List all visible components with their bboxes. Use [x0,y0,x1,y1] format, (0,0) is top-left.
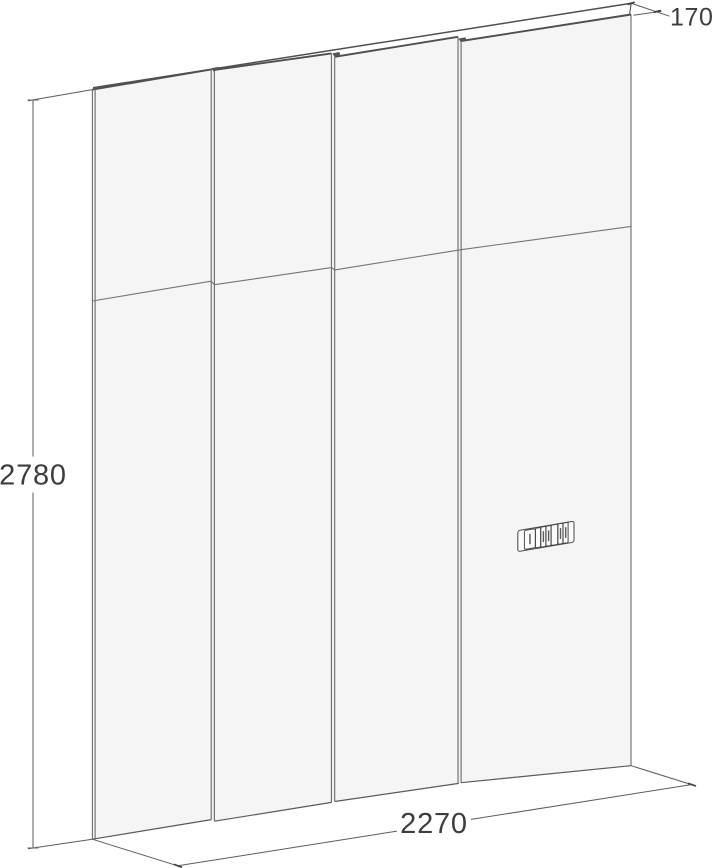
svg-text:2780: 2780 [0,460,67,492]
svg-text:170: 170 [670,3,714,31]
svg-text:2270: 2270 [400,808,468,840]
